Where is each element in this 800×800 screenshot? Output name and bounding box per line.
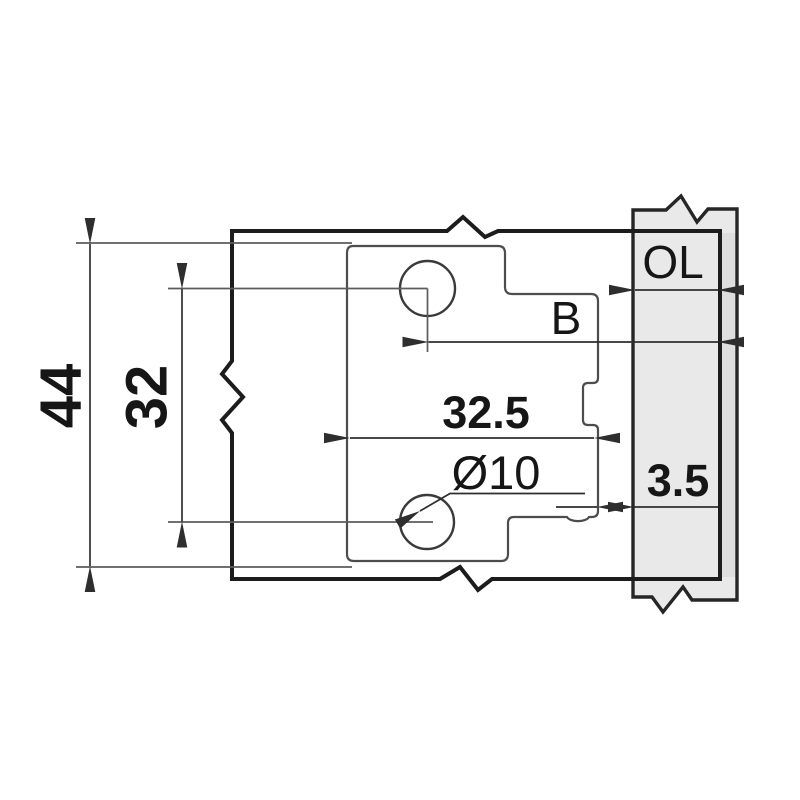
label-hole-diameter: Ø10 [452, 446, 541, 499]
label-gap-offset: 3.5 [647, 455, 710, 506]
hinge-plate-dimension-diagram: 44 32 32.5 Ø10 B OL 3.5 [0, 0, 800, 800]
dimension-labels: 44 32 32.5 Ø10 B OL 3.5 [29, 236, 710, 506]
label-hole-spacing: 32 [115, 365, 180, 430]
door-edge-shadow-strip [722, 233, 737, 577]
label-plate-setback: 32.5 [442, 387, 530, 438]
label-plate-height: 44 [29, 364, 94, 429]
label-overlay: OL [642, 236, 703, 288]
label-boring-distance: B [551, 292, 582, 344]
technical-drawing-canvas: 44 32 32.5 Ø10 B OL 3.5 [0, 0, 800, 800]
dimension-lines [90, 244, 718, 566]
